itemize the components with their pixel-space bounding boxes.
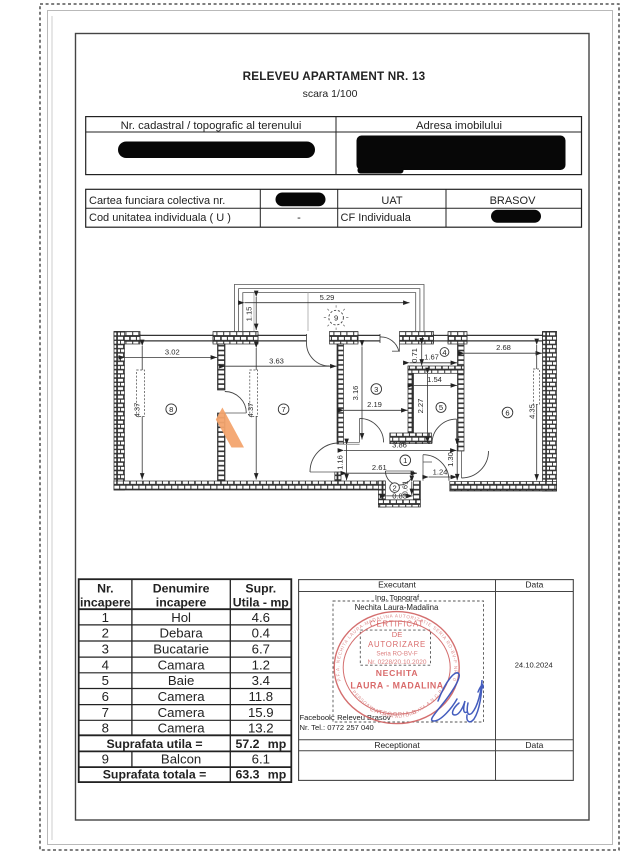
svg-text:63.3: 63.3: [236, 768, 260, 782]
svg-text:1.16: 1.16: [335, 455, 344, 470]
svg-text:Camara: Camara: [158, 658, 206, 673]
svg-text:4: 4: [102, 658, 109, 673]
svg-text:3: 3: [374, 385, 378, 394]
svg-text:3.02: 3.02: [165, 348, 180, 357]
svg-text:2.19: 2.19: [367, 400, 382, 409]
svg-text:DE: DE: [392, 630, 403, 639]
svg-text:0.4: 0.4: [252, 626, 270, 641]
svg-text:6.1: 6.1: [252, 752, 270, 767]
svg-text:1.54: 1.54: [427, 375, 442, 384]
svg-text:RELEVEU APARTAMENT NR. 13: RELEVEU APARTAMENT NR. 13: [243, 70, 426, 83]
svg-text:Denumire: Denumire: [153, 582, 210, 596]
svg-text:Cod unitatea individuala ( U ): Cod unitatea individuala ( U ): [89, 212, 231, 224]
svg-text:24.10.2024: 24.10.2024: [515, 660, 553, 669]
svg-text:2: 2: [392, 483, 396, 492]
svg-text:1.67: 1.67: [424, 353, 439, 362]
svg-text:15.9: 15.9: [248, 705, 274, 720]
svg-text:Supr.: Supr.: [245, 582, 276, 596]
svg-text:8: 8: [169, 405, 173, 414]
svg-text:4.37: 4.37: [246, 403, 255, 418]
svg-text:1.15: 1.15: [245, 307, 254, 322]
svg-text:Receptionat: Receptionat: [374, 740, 420, 750]
svg-text:5.29: 5.29: [320, 293, 335, 302]
svg-text:CERTIFICAT: CERTIFICAT: [370, 620, 424, 629]
svg-text:-: -: [297, 212, 301, 224]
svg-text:3.86: 3.86: [392, 441, 407, 450]
svg-text:7: 7: [102, 705, 109, 720]
svg-text:scara 1/100: scara 1/100: [303, 88, 358, 100]
svg-text:AUTORIZARE: AUTORIZARE: [368, 640, 426, 649]
svg-text:Nr. Tel.: 0772 257 040: Nr. Tel.: 0772 257 040: [300, 723, 374, 732]
svg-text:7: 7: [281, 405, 285, 414]
svg-text:Nr. cadastral / topografic al: Nr. cadastral / topografic al terenului: [121, 120, 302, 132]
svg-text:11.8: 11.8: [248, 689, 273, 704]
svg-text:incapere: incapere: [80, 595, 131, 609]
svg-text:Cartea funciara colectiva nr.: Cartea funciara colectiva nr.: [89, 195, 225, 207]
svg-text:Nr. 0228/20.10.2020: Nr. 0228/20.10.2020: [368, 659, 427, 666]
svg-text:1.30: 1.30: [446, 452, 455, 467]
svg-text:6.7: 6.7: [252, 642, 270, 657]
svg-text:2.27: 2.27: [416, 399, 425, 414]
svg-text:CF Individuala: CF Individuala: [341, 212, 412, 224]
svg-text:Camera: Camera: [158, 689, 206, 704]
svg-text:57.2: 57.2: [236, 737, 260, 751]
svg-text:Camera: Camera: [158, 721, 206, 736]
svg-text:Utila - mp: Utila - mp: [233, 595, 289, 609]
svg-text:1.2: 1.2: [252, 658, 270, 673]
svg-text:3.63: 3.63: [269, 357, 284, 366]
svg-text:Adresa imobilului: Adresa imobilului: [416, 120, 502, 132]
svg-text:5: 5: [439, 403, 443, 412]
svg-text:1: 1: [102, 610, 109, 625]
svg-text:4.35: 4.35: [528, 404, 537, 419]
svg-text:mp: mp: [268, 737, 286, 751]
svg-text:UAT: UAT: [381, 195, 402, 207]
svg-text:incapere: incapere: [156, 595, 207, 609]
svg-text:Nr.: Nr.: [97, 582, 113, 596]
svg-text:LAURA - MADALINA: LAURA - MADALINA: [350, 681, 443, 691]
svg-text:BRASOV: BRASOV: [490, 195, 537, 207]
svg-text:Camera: Camera: [158, 705, 206, 720]
svg-text:13.2: 13.2: [248, 721, 274, 736]
svg-text:9: 9: [334, 313, 338, 322]
svg-text:Hol: Hol: [171, 610, 191, 625]
svg-text:Bucatarie: Bucatarie: [153, 642, 209, 657]
svg-text:5: 5: [102, 673, 109, 688]
svg-text:Suprafata totala =: Suprafata totala =: [103, 768, 207, 782]
svg-text:0.71: 0.71: [410, 348, 419, 363]
svg-text:3: 3: [102, 642, 109, 657]
svg-text:Suprafata utila =: Suprafata utila =: [106, 737, 202, 751]
svg-text:2.68: 2.68: [496, 343, 511, 352]
svg-text:2: 2: [102, 626, 109, 641]
svg-text:Ing. Topograf: Ing. Topograf: [375, 593, 420, 602]
svg-text:Seria RO-BV-F: Seria RO-BV-F: [376, 650, 417, 657]
svg-text:3.16: 3.16: [351, 386, 360, 401]
svg-text:8: 8: [102, 721, 109, 736]
svg-text:Data: Data: [525, 740, 543, 750]
svg-text:mp: mp: [268, 768, 286, 782]
svg-text:4.6: 4.6: [252, 610, 270, 625]
svg-text:Baie: Baie: [168, 673, 194, 688]
svg-text:Data: Data: [525, 580, 543, 590]
svg-text:1.24: 1.24: [433, 468, 448, 477]
svg-text:NECHITA: NECHITA: [376, 668, 418, 678]
svg-text:6: 6: [505, 408, 509, 417]
svg-text:2.61: 2.61: [372, 463, 387, 472]
svg-text:9: 9: [102, 752, 109, 767]
svg-text:Debara: Debara: [159, 626, 203, 641]
svg-text:Nechita Laura-Madalina: Nechita Laura-Madalina: [355, 603, 439, 612]
svg-text:0.83: 0.83: [392, 492, 407, 501]
svg-text:6: 6: [102, 689, 109, 704]
svg-text:1: 1: [403, 456, 407, 465]
svg-text:Executant: Executant: [378, 580, 416, 590]
svg-text:3.4: 3.4: [252, 673, 270, 688]
svg-text:4.37: 4.37: [133, 403, 142, 418]
svg-text:Balcon: Balcon: [161, 752, 201, 767]
svg-text:4: 4: [442, 348, 446, 357]
